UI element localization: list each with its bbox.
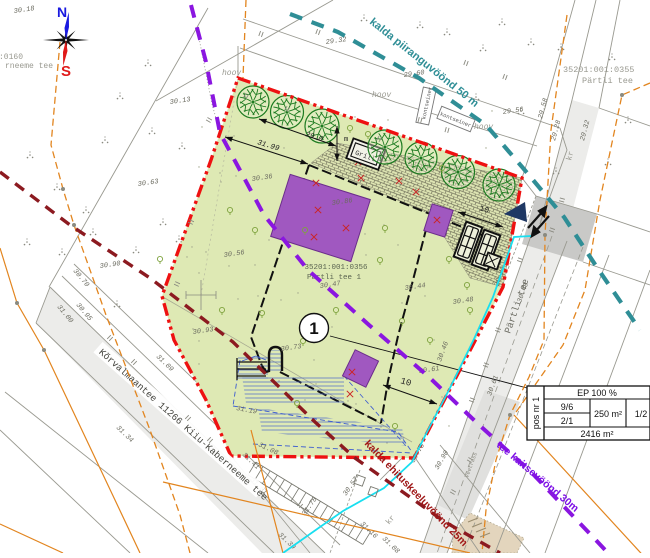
svg-text:rneeme tee: rneeme tee xyxy=(5,62,53,71)
svg-text:9/6: 9/6 xyxy=(561,402,574,412)
svg-text:250 m²: 250 m² xyxy=(594,409,622,419)
svg-text:1: 1 xyxy=(309,319,318,338)
svg-text:Pärtli tee: Pärtli tee xyxy=(582,76,633,86)
svg-text:35201:001:0356: 35201:001:0356 xyxy=(304,264,368,272)
svg-text:N: N xyxy=(57,4,67,20)
svg-text::0160: :0160 xyxy=(0,53,23,62)
svg-text:S: S xyxy=(61,63,71,80)
svg-text:hoov: hoov xyxy=(222,69,241,78)
svg-text:35201:001:0355: 35201:001:0355 xyxy=(563,65,634,75)
svg-text:pos nr 1: pos nr 1 xyxy=(531,397,541,430)
svg-text:2416 m²: 2416 m² xyxy=(580,429,613,439)
svg-text:1/2: 1/2 xyxy=(635,409,648,419)
svg-text:EP 100 %: EP 100 % xyxy=(577,388,617,398)
svg-text:m: m xyxy=(344,136,348,144)
svg-text:2/1: 2/1 xyxy=(561,416,574,426)
svg-text:hoov: hoov xyxy=(372,91,391,100)
